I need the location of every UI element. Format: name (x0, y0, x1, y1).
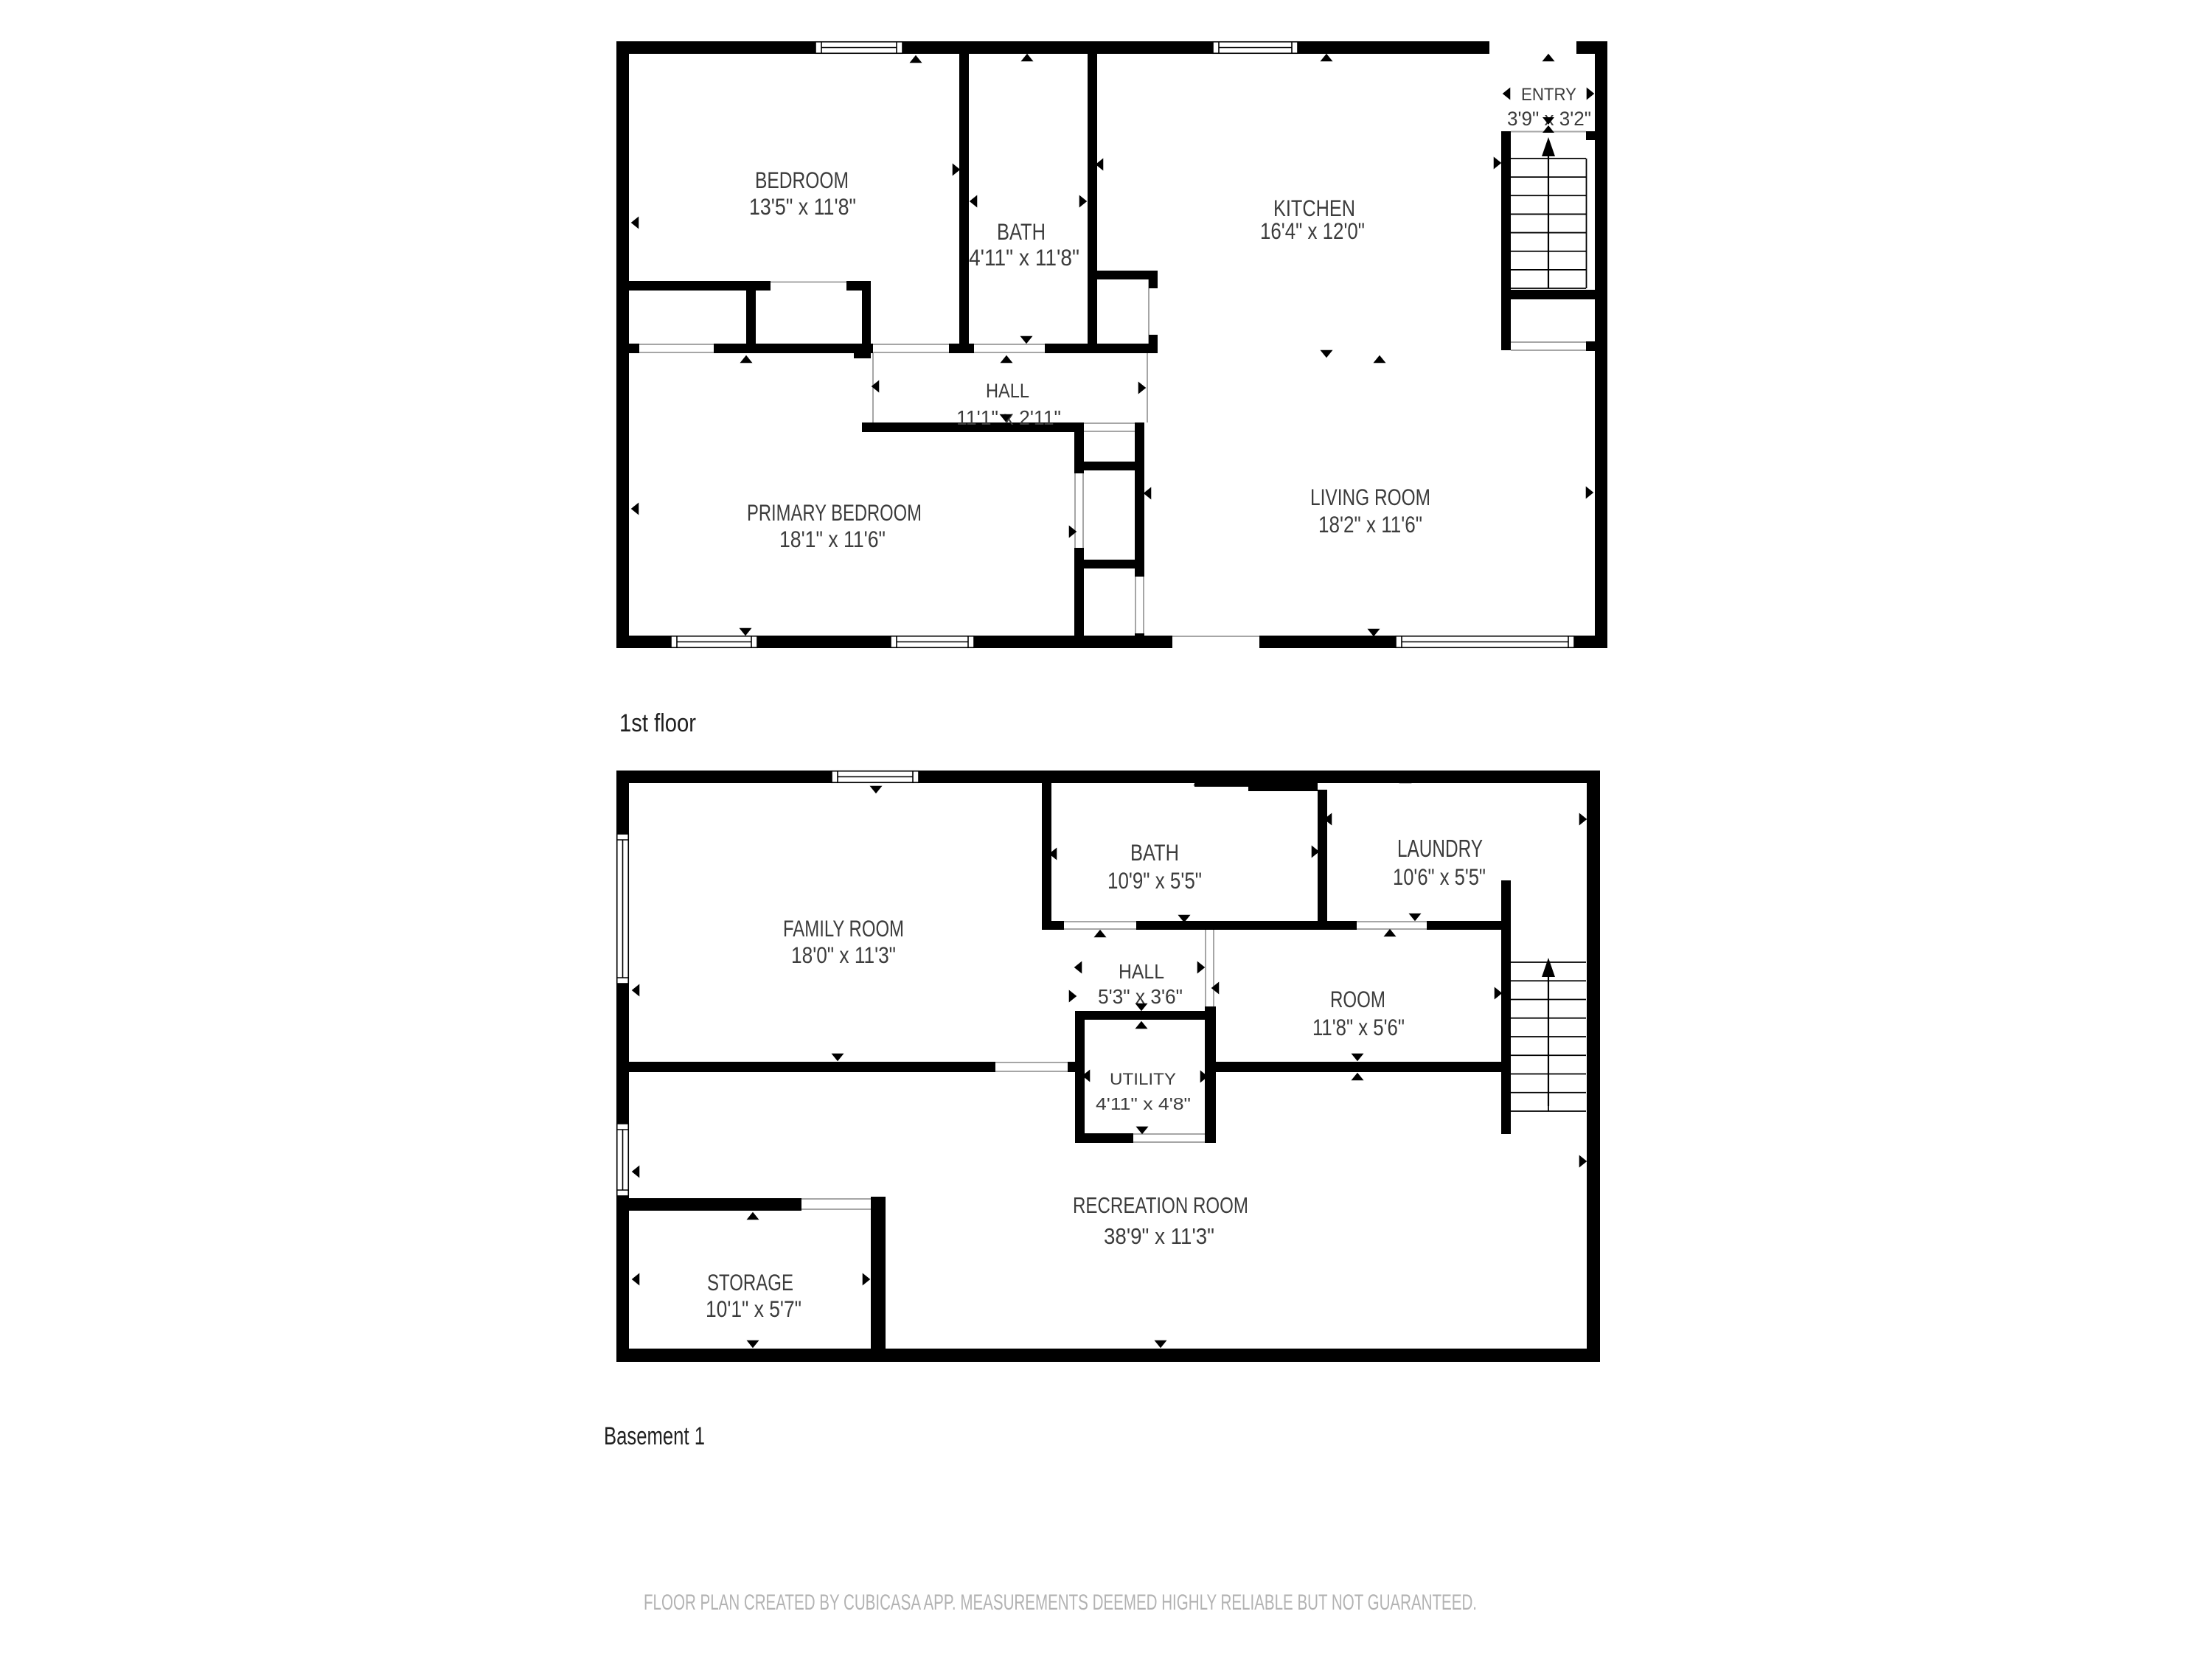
svg-text:FAMILY ROOM: FAMILY ROOM (783, 915, 904, 942)
svg-text:BEDROOM: BEDROOM (755, 167, 849, 193)
svg-text:4'11" x 11'8": 4'11" x 11'8" (969, 244, 1079, 271)
svg-text:STORAGE: STORAGE (707, 1269, 793, 1295)
svg-text:ROOM: ROOM (1330, 986, 1385, 1012)
svg-text:LAUNDRY: LAUNDRY (1397, 835, 1483, 862)
svg-text:RECREATION ROOM: RECREATION ROOM (1073, 1192, 1248, 1218)
svg-text:13'5" x 11'8": 13'5" x 11'8" (749, 193, 856, 220)
svg-text:LIVING ROOM: LIVING ROOM (1310, 484, 1430, 510)
svg-text:10'6" x 5'5": 10'6" x 5'5" (1393, 863, 1486, 890)
svg-text:38'9" x 11'3": 38'9" x 11'3" (1104, 1223, 1214, 1249)
svg-text:BATH: BATH (997, 218, 1046, 245)
svg-text:ENTRY: ENTRY (1521, 85, 1576, 105)
svg-text:18'1" x 11'6": 18'1" x 11'6" (779, 526, 886, 552)
svg-text:FLOOR PLAN CREATED BY CUBICASA: FLOOR PLAN CREATED BY CUBICASA APP. MEAS… (644, 1590, 1477, 1615)
svg-text:UTILITY: UTILITY (1110, 1070, 1176, 1088)
svg-text:PRIMARY BEDROOM: PRIMARY BEDROOM (747, 499, 922, 526)
svg-text:HALL: HALL (986, 380, 1029, 402)
svg-text:11'8" x 5'6": 11'8" x 5'6" (1312, 1014, 1405, 1040)
svg-text:10'1" x 5'7": 10'1" x 5'7" (706, 1295, 801, 1322)
svg-text:18'2" x 11'6": 18'2" x 11'6" (1318, 511, 1422, 538)
svg-text:BATH: BATH (1130, 839, 1179, 866)
svg-text:HALL: HALL (1119, 960, 1164, 983)
svg-text:18'0" x 11'3": 18'0" x 11'3" (791, 942, 896, 968)
svg-text:Basement 1: Basement 1 (604, 1422, 705, 1450)
svg-text:4'11" x 4'8": 4'11" x 4'8" (1096, 1094, 1191, 1113)
svg-text:10'9" x 5'5": 10'9" x 5'5" (1107, 867, 1202, 894)
svg-text:1st floor: 1st floor (619, 709, 696, 737)
svg-text:16'4" x 12'0": 16'4" x 12'0" (1260, 218, 1365, 244)
